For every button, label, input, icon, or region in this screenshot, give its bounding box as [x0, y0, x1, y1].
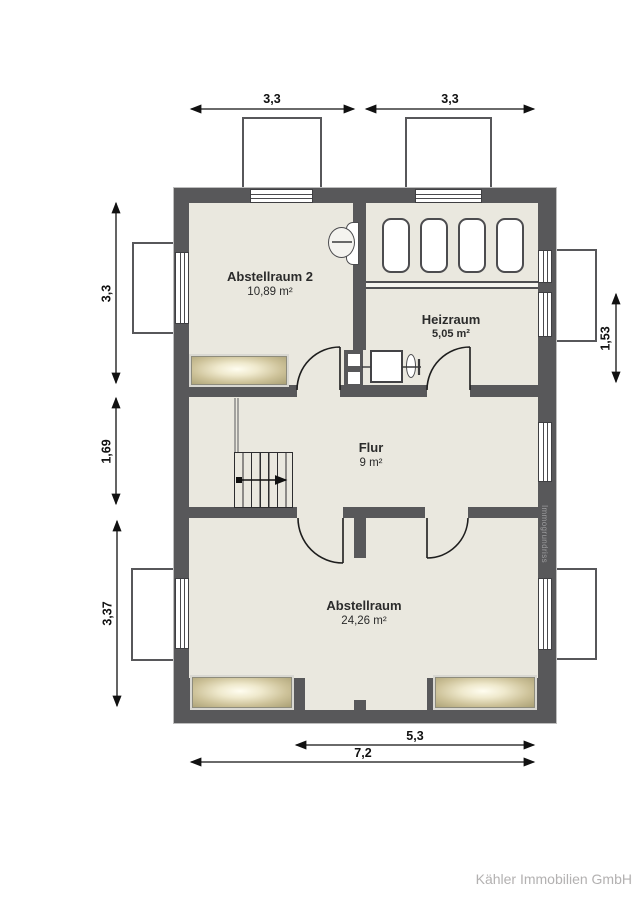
dim-bottom-outer: 7,2: [341, 746, 385, 761]
dim-bottom-inner: 5,3: [393, 729, 437, 744]
room-name: Flur: [311, 440, 431, 456]
room-name: Abstellraum 2: [190, 269, 350, 285]
room-label-abstellraum2: Abstellraum 2 10,89 m²: [190, 269, 350, 300]
stair-linework: [235, 398, 286, 483]
room-area: 24,26 m²: [284, 614, 444, 628]
dim-top-right: 3,3: [428, 92, 472, 107]
room-name: Abstellraum: [284, 598, 444, 614]
dim-left-middle: 1,69: [100, 430, 115, 474]
room-name: Heizraum: [381, 312, 521, 328]
room-label-flur: Flur 9 m²: [311, 440, 431, 471]
floor-plan: Abstellraum 2 10,89 m² Heizraum 5,05 m² …: [0, 0, 636, 900]
dim-top-left: 3,3: [250, 92, 294, 107]
room-area: 9 m²: [311, 456, 431, 470]
footer-company-label: Kähler Immobilien GmbH: [400, 871, 632, 887]
dim-left-top: 3,3: [100, 272, 115, 316]
room-label-heizraum: Heizraum 5,05 m²: [381, 312, 521, 342]
fixture-connectors: [332, 242, 421, 375]
room-area: 10,89 m²: [190, 285, 350, 299]
dimension-lines: [116, 109, 616, 762]
dim-left-bottom: 3,37: [101, 592, 116, 636]
dim-right-middle: 1,53: [599, 317, 614, 361]
watermark-label: Immogrundriss: [538, 502, 550, 566]
room-area: 5,05 m²: [381, 328, 521, 342]
room-label-abstellraum: Abstellraum 24,26 m²: [284, 598, 444, 629]
